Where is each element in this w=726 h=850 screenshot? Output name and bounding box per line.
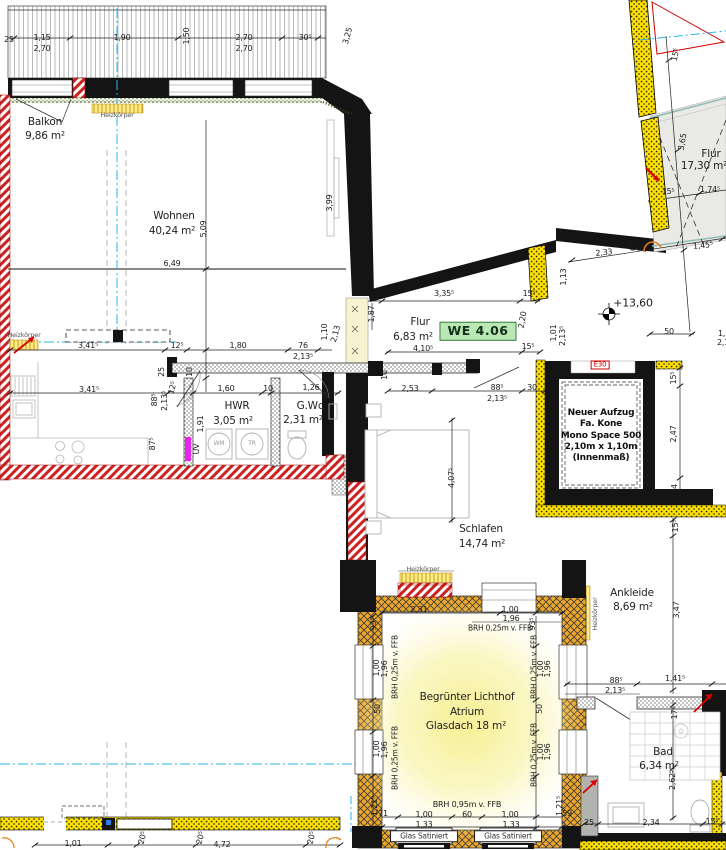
unit-number-badge: WE 4.06 [439,322,516,341]
wall-below-stair [556,228,666,253]
radiator [398,571,454,583]
roof-outline-red [652,2,724,54]
toilet [691,800,709,824]
demolition-wall-bottom [0,465,338,479]
orange-arc-symbol [2,838,14,848]
radiator [92,104,143,113]
fire-rating-label: E30 [591,361,610,370]
dryer [241,433,263,455]
door-leaf [474,367,519,388]
toilet [288,437,306,459]
uv-distribution-board [185,437,191,461]
nightstand [366,404,381,417]
atrium-window [559,645,587,699]
marker-blue [106,820,111,825]
bed [365,430,469,518]
washing-machine [208,433,230,455]
new-window-element [528,245,548,301]
atrium-window [355,645,383,699]
balcony-deck [8,6,326,78]
glass-panel-label: Glas Satiniert [390,830,458,842]
wall-new-bottom [0,742,356,848]
atrium-window [482,583,536,612]
atrium-window [559,730,587,774]
floor-plan-page: 251,152,701,901,502,702,7030⁵3,25Balkon9… [0,0,726,850]
column [113,330,123,342]
demolition-wall-segment [73,78,85,98]
kitchen-counter [10,362,148,464]
column [581,776,598,836]
elevator-note: Neuer Aufzug Fa. Kone Mono Space 500 2,1… [546,408,656,464]
radiator [10,337,38,353]
exterior-wall-top [8,78,372,122]
atrium-window [355,730,383,774]
glass-panel-label: Glas Satiniert [474,830,542,842]
nightstand [366,521,381,534]
elevation-marker [598,303,620,325]
atrium [340,560,590,849]
ankleide-bad [564,518,726,850]
demolition-wall-left [0,95,10,480]
shower [630,712,720,780]
door-leaf [596,698,634,722]
